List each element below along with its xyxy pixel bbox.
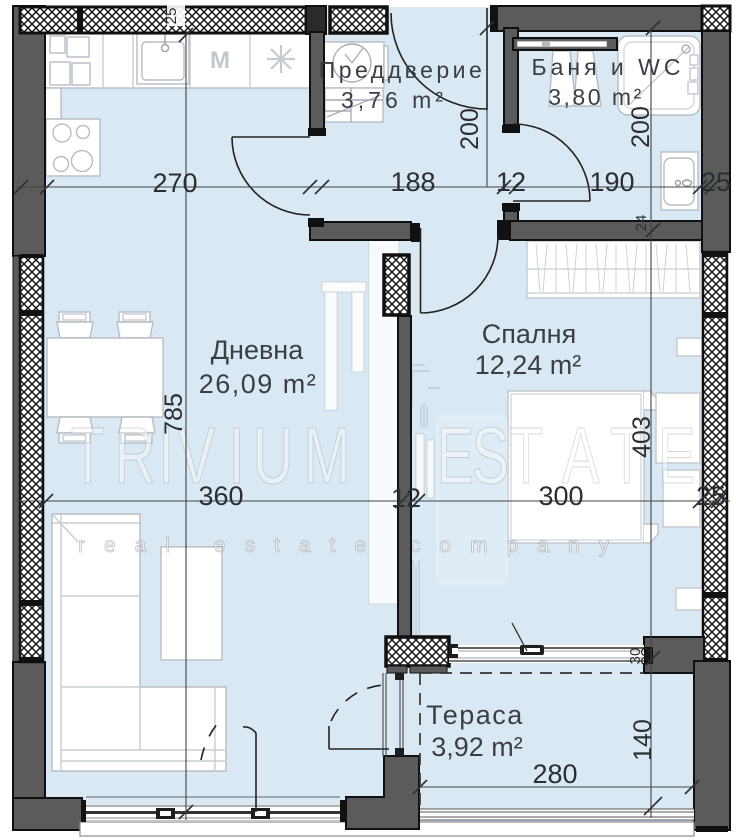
svg-text:200: 200 — [456, 108, 484, 150]
svg-text:785: 785 — [160, 393, 188, 435]
svg-text:Тераса: Тераса — [426, 700, 524, 730]
svg-text:3,92 m²: 3,92 m² — [431, 732, 523, 762]
svg-text:Баня и WC: Баня и WC — [532, 54, 685, 80]
svg-text:188: 188 — [390, 167, 435, 197]
svg-text:25: 25 — [696, 481, 726, 511]
svg-text:24: 24 — [633, 215, 650, 232]
svg-text:Дневна: Дневна — [211, 335, 304, 365]
svg-text:360: 360 — [198, 481, 243, 511]
svg-text:200: 200 — [627, 106, 655, 148]
svg-text:25: 25 — [163, 8, 180, 25]
svg-text:12,24 m²: 12,24 m² — [475, 350, 582, 380]
svg-text:403: 403 — [628, 416, 656, 458]
svg-text:280: 280 — [532, 759, 577, 789]
svg-text:3,80 m²: 3,80 m² — [548, 84, 643, 110]
svg-text:Спалня: Спалня — [482, 319, 576, 349]
svg-text:300: 300 — [538, 481, 583, 511]
svg-text:real estate company: real estate company — [78, 534, 628, 557]
svg-text:Преддверие: Преддверие — [319, 57, 486, 83]
svg-text:26,09 m²: 26,09 m² — [199, 369, 318, 399]
svg-text:270: 270 — [152, 168, 197, 198]
svg-text:25: 25 — [701, 167, 731, 197]
svg-text:190: 190 — [589, 167, 634, 197]
svg-text:M: M — [210, 47, 230, 74]
svg-text:30: 30 — [627, 648, 644, 665]
svg-text:140: 140 — [629, 719, 657, 761]
svg-text:12: 12 — [496, 167, 526, 197]
svg-text:3,76 m²: 3,76 m² — [341, 87, 447, 113]
svg-text:12: 12 — [391, 483, 421, 513]
